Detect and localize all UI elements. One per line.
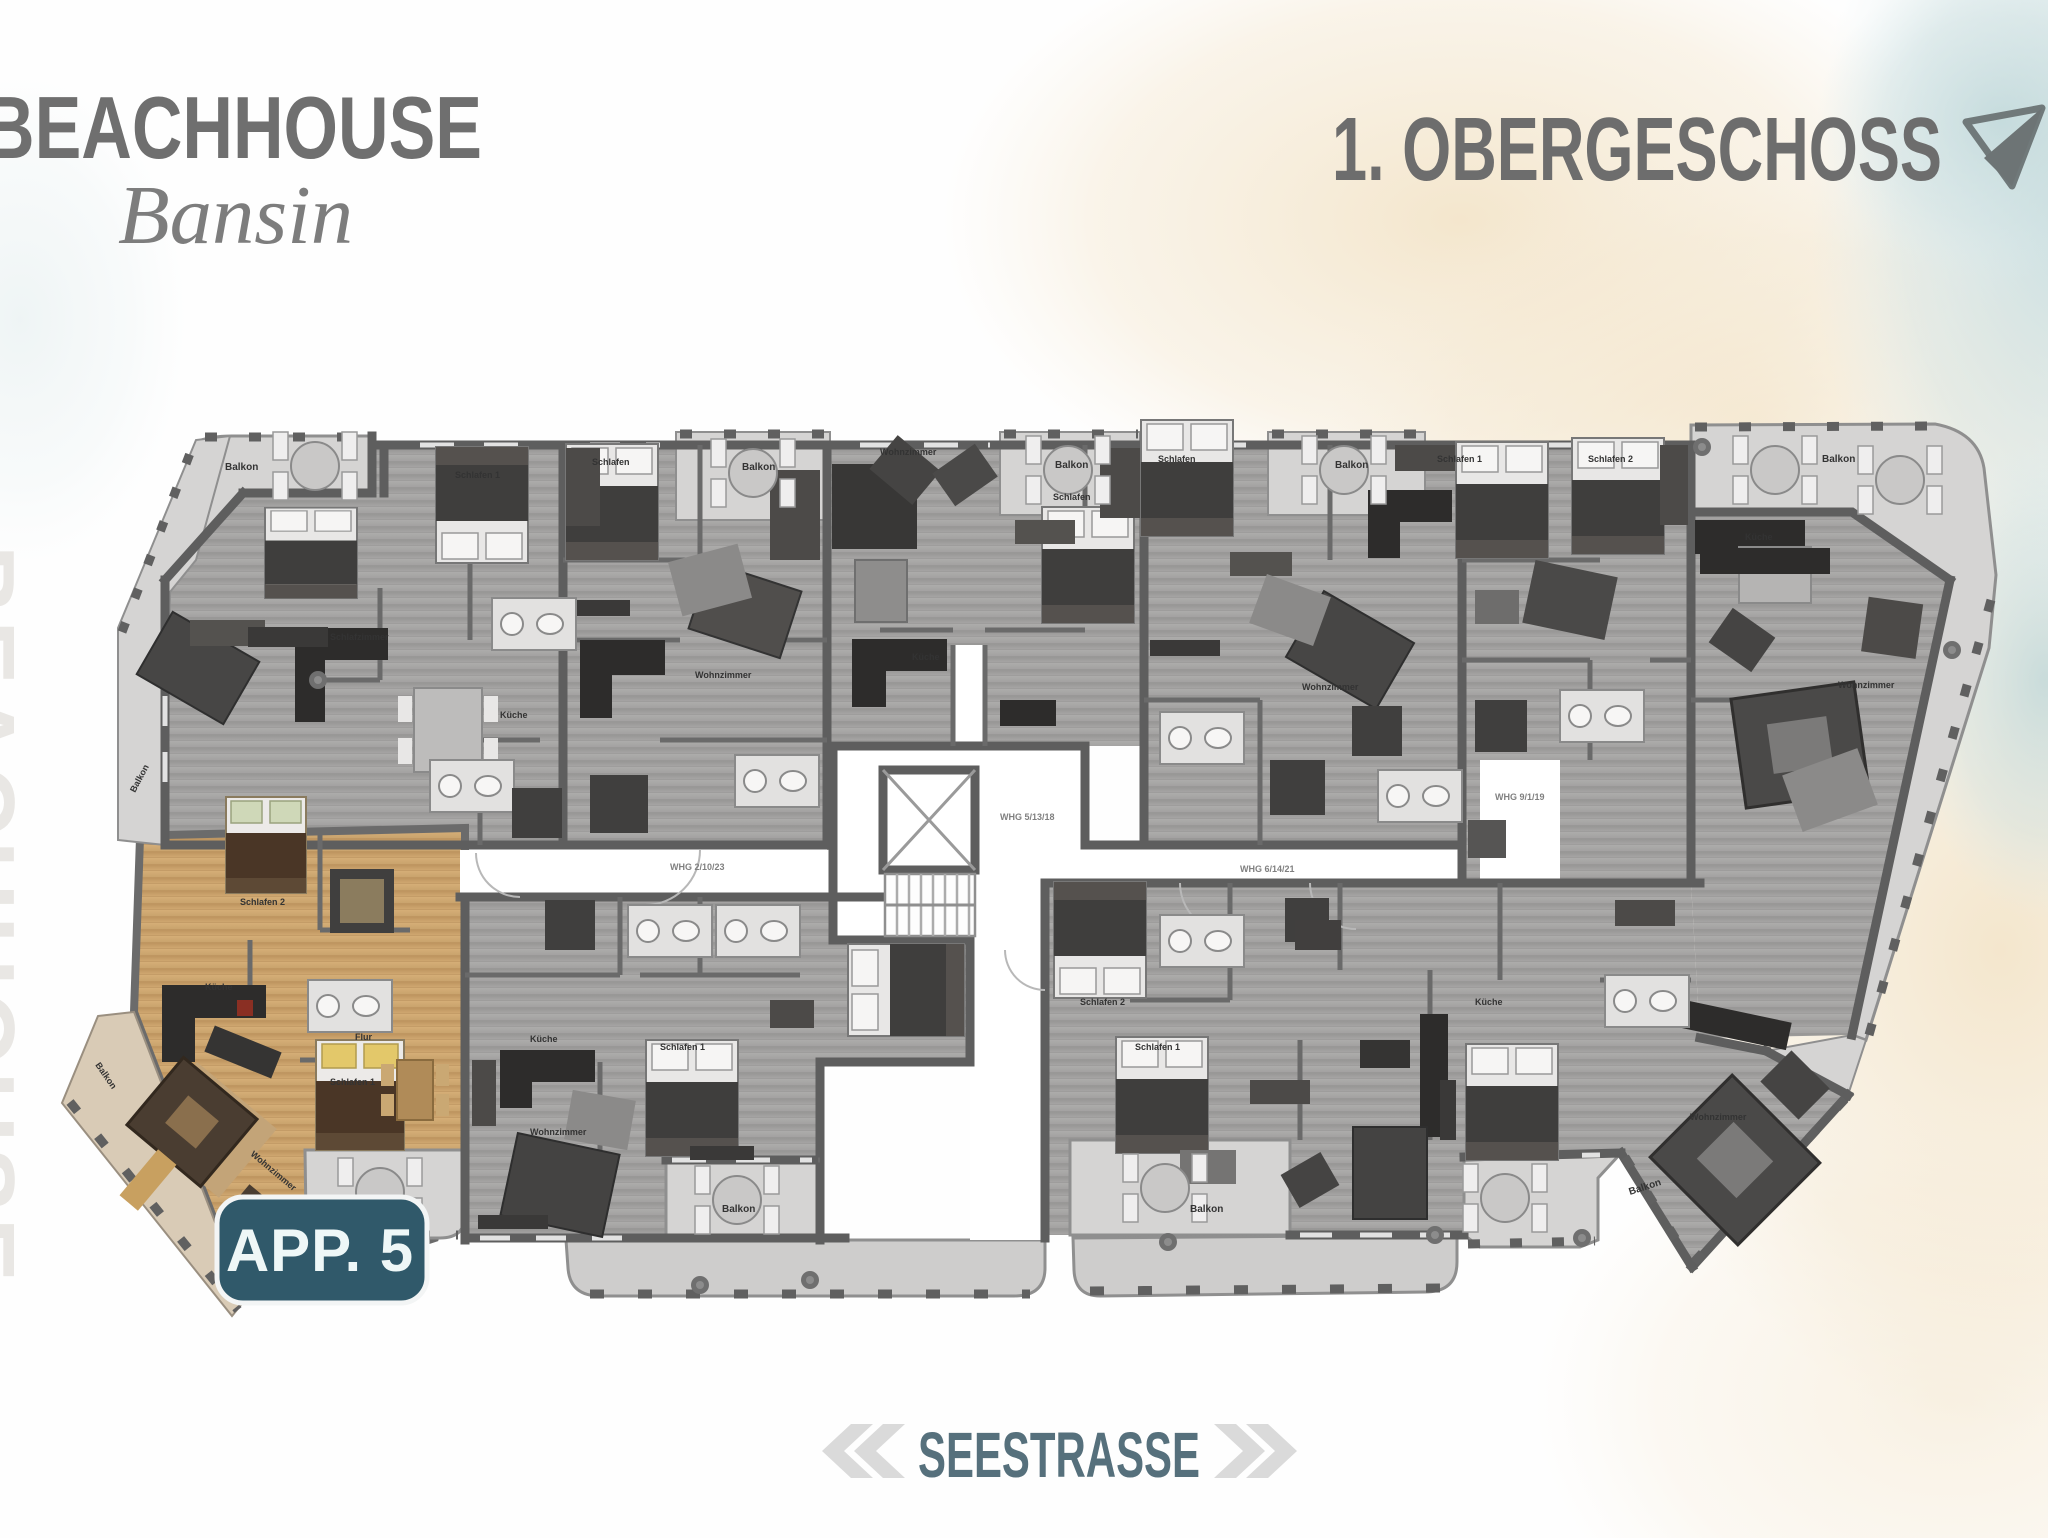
svg-text:Balkon: Balkon	[1055, 460, 1088, 471]
svg-text:Balkon: Balkon	[722, 1204, 755, 1215]
svg-text:Wohnzimmer: Wohnzimmer	[880, 447, 937, 457]
svg-text:Schlafen 1: Schlafen 1	[1135, 1042, 1180, 1052]
svg-text:Küche: Küche	[1745, 532, 1773, 542]
svg-text:Balkon: Balkon	[742, 462, 775, 473]
svg-text:BEACHHOUSE: BEACHHOUSE	[0, 78, 482, 177]
svg-text:Balkon: Balkon	[1190, 1204, 1223, 1215]
svg-text:Schlafen: Schlafen	[1053, 492, 1091, 502]
svg-text:Schlafen 1: Schlafen 1	[455, 470, 500, 480]
svg-text:Schlafen 1: Schlafen 1	[660, 1042, 705, 1052]
svg-text:1. OBERGESCHOSS: 1. OBERGESCHOSS	[1332, 100, 1942, 200]
svg-text:Küche: Küche	[205, 982, 233, 992]
svg-text:Schlafen: Schlafen	[592, 457, 630, 467]
svg-text:Wohnzimmer: Wohnzimmer	[530, 1127, 587, 1137]
svg-text:Schlafzimmer: Schlafzimmer	[330, 632, 389, 642]
svg-text:Wohnzimmer: Wohnzimmer	[695, 670, 752, 680]
svg-text:Schlafen 1: Schlafen 1	[1437, 454, 1482, 464]
svg-text:Flur: Flur	[355, 1032, 372, 1042]
svg-text:Wohnzimmer: Wohnzimmer	[1838, 680, 1895, 690]
svg-text:Balkon: Balkon	[1335, 460, 1368, 471]
svg-text:Schlafen 2: Schlafen 2	[1588, 454, 1633, 464]
svg-text:WHG 6/14/21: WHG 6/14/21	[1240, 864, 1295, 874]
svg-text:Küche: Küche	[500, 710, 528, 720]
svg-text:WHG 9/1/19: WHG 9/1/19	[1495, 792, 1545, 802]
svg-text:Bansin: Bansin	[118, 169, 353, 262]
svg-text:APP. 5: APP. 5	[226, 1217, 414, 1284]
svg-text:WHG 2/10/23: WHG 2/10/23	[670, 862, 725, 872]
svg-text:Küche: Küche	[912, 652, 940, 662]
svg-text:Wohnzimmer: Wohnzimmer	[1690, 1112, 1747, 1122]
svg-text:Balkon: Balkon	[1822, 454, 1855, 465]
svg-text:SEESTRASSE: SEESTRASSE	[918, 1419, 1200, 1491]
svg-text:BEACHHOUSE: BEACHHOUSE	[0, 545, 34, 1288]
svg-text:Wohnzimmer: Wohnzimmer	[1302, 682, 1359, 692]
svg-text:Schlafen: Schlafen	[1158, 454, 1196, 464]
svg-text:Schlafen 1: Schlafen 1	[330, 1077, 375, 1087]
svg-text:WHG 5/13/18: WHG 5/13/18	[1000, 812, 1055, 822]
svg-text:Küche: Küche	[1475, 997, 1503, 1007]
svg-text:Küche: Küche	[530, 1034, 558, 1044]
svg-text:Balkon: Balkon	[225, 462, 258, 473]
svg-text:Schlafen 2: Schlafen 2	[240, 897, 285, 907]
svg-text:Schlafen 2: Schlafen 2	[1080, 997, 1125, 1007]
